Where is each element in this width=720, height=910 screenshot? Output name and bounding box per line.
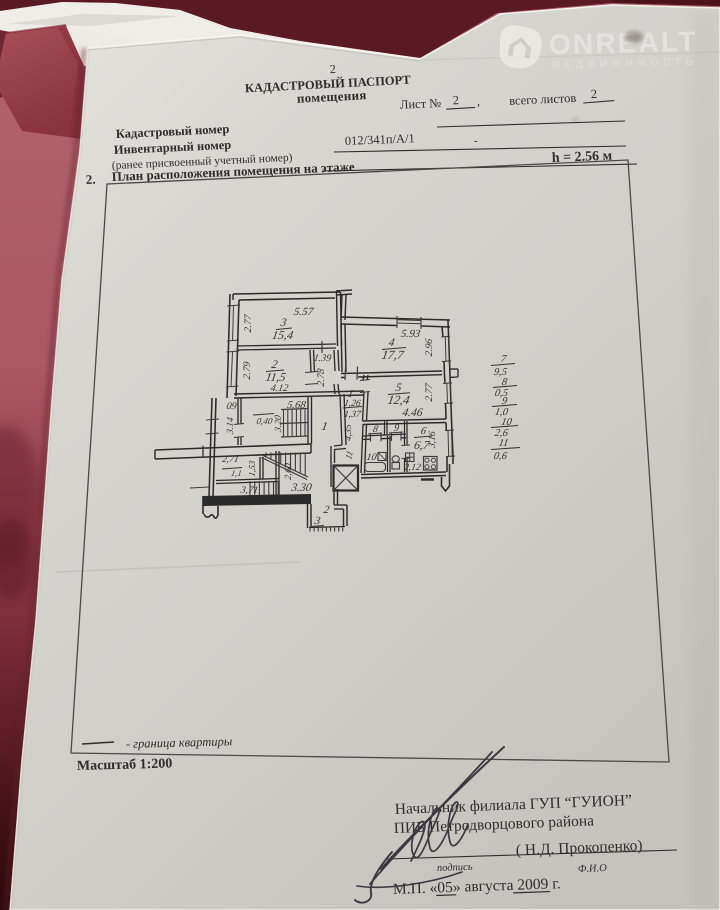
svg-text:2,12: 2,12 (403, 462, 422, 473)
svg-text:4,35: 4,35 (343, 423, 354, 442)
svg-text:2.79: 2.79 (242, 361, 253, 380)
svg-text:2.77: 2.77 (424, 382, 435, 402)
svg-text:5.57: 5.57 (293, 306, 315, 318)
svg-text:012/341п/А/1: 012/341п/А/1 (345, 131, 415, 148)
svg-text:ONREALT: ONREALT (549, 26, 698, 60)
svg-text:09: 09 (225, 401, 237, 412)
svg-text:Масштаб 1:200: Масштаб 1:200 (77, 757, 173, 774)
svg-text:10: 10 (365, 452, 377, 463)
svg-text:1,1: 1,1 (230, 468, 242, 478)
svg-text:- граница квартиры: - граница квартиры (126, 734, 233, 751)
svg-text:2.78: 2.78 (316, 368, 327, 387)
svg-text:1,37: 1,37 (343, 409, 363, 420)
svg-text:,: , (477, 94, 481, 108)
svg-text:2.77: 2.77 (243, 313, 254, 333)
svg-text:1.39: 1.39 (313, 353, 332, 364)
svg-text:подпись: подпись (437, 862, 473, 874)
svg-text:11: 11 (498, 438, 510, 449)
svg-text:2: 2 (329, 62, 336, 76)
svg-text:0,40: 0,40 (256, 416, 274, 426)
svg-text:17,7: 17,7 (381, 348, 406, 362)
svg-text:15,4: 15,4 (271, 328, 294, 342)
svg-text:12,4: 12,4 (387, 393, 411, 407)
svg-text:2: 2 (590, 87, 597, 101)
svg-text:4.46: 4.46 (401, 406, 424, 419)
svg-text:4.12: 4.12 (270, 383, 289, 394)
svg-text:0,6: 0,6 (493, 451, 509, 462)
svg-text:3,71: 3,71 (239, 485, 259, 496)
svg-text:1,53: 1,53 (247, 459, 257, 477)
svg-text:Ф.И.О: Ф.И.О (578, 863, 608, 875)
svg-text:2.96: 2.96 (424, 338, 435, 357)
svg-text:2,71: 2,71 (221, 454, 240, 465)
svg-text:3,16: 3,16 (427, 430, 438, 450)
svg-text:5.93: 5.93 (400, 328, 422, 340)
svg-text:3.14: 3.14 (225, 416, 236, 436)
svg-text:11,5: 11,5 (264, 370, 287, 384)
svg-text:3.30: 3.30 (289, 481, 313, 494)
svg-text:2.: 2. (85, 172, 95, 187)
svg-text:2,60: 2,60 (283, 462, 294, 481)
svg-text:Лист №: Лист № (400, 96, 442, 112)
svg-text:2: 2 (452, 93, 459, 107)
